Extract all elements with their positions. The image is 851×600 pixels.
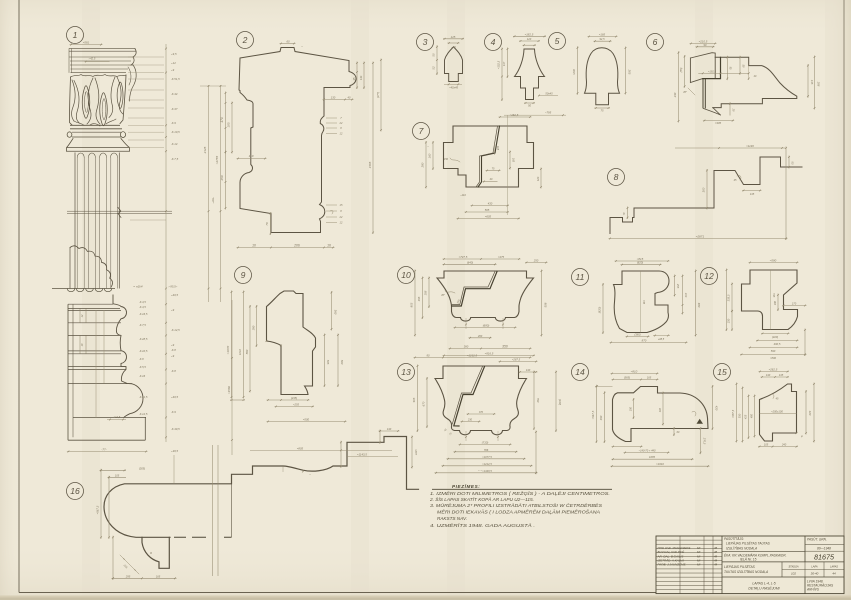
svg-text:LAPAS L-4, L-5: LAPAS L-4, L-5	[752, 582, 775, 586]
svg-text:358: 358	[424, 290, 428, 295]
svg-text:(320): (320)	[772, 335, 778, 339]
svg-text:≈200: ≈200	[572, 68, 576, 75]
svg-text:1010: 1010	[238, 348, 242, 355]
svg-text:280: 280	[421, 162, 425, 168]
svg-text:LAPAS: LAPAS	[830, 566, 838, 569]
svg-text:≈200x100: ≈200x100	[771, 410, 783, 414]
svg-text:⌐60⌐: ⌐60⌐	[211, 196, 215, 203]
svg-text:590: 590	[771, 349, 776, 353]
svg-text:16: 16	[327, 243, 331, 247]
svg-text:505: 505	[326, 360, 330, 365]
svg-text:180: 180	[774, 300, 777, 305]
svg-text:230: 230	[727, 318, 731, 324]
svg-text:≈1610: ≈1610	[656, 462, 664, 466]
svg-text:IZGLĪTĪBAS NODAĻA: IZGLĪTĪBAS NODAĻA	[726, 546, 757, 550]
svg-text:≈475: ≈475	[498, 255, 505, 259]
svg-text:≈2785: ≈2785	[215, 156, 219, 165]
svg-text:Mℓ: Mℓ	[697, 563, 700, 567]
svg-text:60: 60	[286, 40, 290, 44]
svg-text:255: 255	[676, 283, 680, 289]
svg-text:420: 420	[808, 411, 812, 416]
svg-text:≈810: ≈810	[631, 370, 638, 374]
svg-text:208: 208	[816, 81, 820, 87]
svg-text:2. ŠĪS LAPAS SKATĪT KOPĀ: 2. ŠĪS LAPAS SKATĪT KOPĀ AR LAPU U2—115.	[429, 497, 534, 502]
svg-text:4: 4	[491, 37, 496, 47]
svg-text:22: 22	[339, 121, 343, 125]
svg-text:≈152,5: ≈152,5	[497, 60, 501, 69]
svg-text:⌐40,5: ⌐40,5	[171, 293, 179, 297]
svg-text:410: 410	[684, 293, 688, 298]
svg-text:10: 10	[401, 270, 411, 280]
svg-text:3: 3	[423, 37, 428, 47]
svg-text:360: 360	[334, 310, 338, 315]
svg-text:≈737,5: ≈737,5	[459, 255, 468, 259]
svg-text:495: 495	[417, 296, 421, 301]
svg-text:505: 505	[485, 208, 490, 212]
svg-text:-77-: -77-	[101, 448, 106, 452]
svg-text:335,5: 335,5	[727, 294, 731, 301]
svg-text:≈192,5: ≈192,5	[708, 69, 716, 73]
svg-text:105: 105	[115, 473, 120, 477]
svg-text:870: 870	[642, 339, 647, 343]
svg-text:~795: ~795	[545, 111, 552, 115]
svg-text:4. UZMĒRĪTS 1948. GADA AUGU: 4. UZMĒRĪTS 1948. GADA AUGUSTĀ .	[430, 523, 535, 528]
svg-text:15: 15	[717, 367, 727, 377]
svg-text:φ: φ	[801, 435, 803, 438]
svg-text:230: 230	[673, 92, 677, 98]
svg-text:≈287,5: ≈287,5	[512, 358, 521, 362]
svg-text:206: 206	[293, 243, 300, 247]
svg-text:140: 140	[359, 75, 363, 80]
svg-text:≈800: ≈800	[770, 356, 776, 360]
svg-text:≈1130: ≈1130	[746, 144, 754, 148]
svg-text:~110: ~110	[460, 193, 466, 197]
svg-text:≈1212,5: ≈1212,5	[467, 354, 478, 358]
svg-text:1085: 1085	[649, 455, 655, 459]
svg-text:310: 310	[659, 407, 662, 412]
svg-text:11: 11	[576, 272, 585, 282]
svg-text:102: 102	[791, 572, 796, 576]
svg-text:PIEZĪMES:: PIEZĪMES:	[452, 483, 480, 489]
svg-text:~ ~: ~ ~	[478, 468, 483, 472]
svg-text:130: 130	[387, 427, 392, 431]
svg-text:50x45: 50x45	[545, 92, 553, 96]
svg-text:(377): (377)	[376, 92, 380, 98]
svg-text:LIEPĀJAS PILSĒTAS: LIEPĀJAS PILSĒTAS	[724, 565, 756, 569]
svg-text:~140-70 + 440: ~140-70 + 440	[639, 449, 656, 453]
svg-text:45°: 45°	[441, 294, 445, 297]
svg-text:790: 790	[536, 398, 540, 403]
svg-text:120: 120	[527, 37, 532, 41]
svg-text:IELĀ Nr. 15: IELĀ Nr. 15	[740, 558, 757, 562]
svg-text:(305): (305)	[139, 466, 145, 470]
svg-text:-6 4,5: -6 4,5	[139, 305, 146, 309]
svg-text:≈590: ≈590	[770, 259, 777, 263]
svg-text:30-40: 30-40	[811, 572, 819, 576]
svg-text:≈165: ≈165	[599, 33, 606, 37]
svg-text:PARB. J.JAUNZEMS: PARB. J.JAUNZEMS	[658, 563, 686, 567]
svg-text:-6 8: -6 8	[139, 357, 144, 361]
svg-text:-6 10,5: -6 10,5	[171, 130, 180, 134]
svg-text:670: 670	[422, 401, 426, 406]
svg-text:-6 12,5: -6 12,5	[171, 328, 180, 332]
svg-text:⌐30,5: ⌐30,5	[171, 449, 179, 453]
svg-text:-6 5,5: -6 5,5	[139, 365, 146, 369]
svg-text:1565: 1565	[368, 161, 372, 168]
svg-text:10: 10	[252, 243, 256, 247]
svg-text:TAUTAS IZGLĪTĪBAS NODAĻA: TAUTAS IZGLĪTĪBAS NODAĻA	[724, 570, 768, 574]
svg-text:130: 130	[526, 368, 531, 372]
svg-text:135: 135	[779, 373, 784, 377]
svg-text:LAPA: LAPA	[811, 566, 818, 569]
svg-text:135: 135	[750, 192, 755, 196]
svg-text:50: 50	[432, 53, 436, 57]
svg-text:≈1348,5: ≈1348,5	[482, 469, 492, 473]
svg-text:⌐9: ⌐9	[171, 354, 175, 358]
svg-text:137: 137	[502, 61, 506, 66]
svg-text:44: 44	[832, 572, 836, 576]
svg-text:390: 390	[251, 325, 255, 330]
svg-text:2125: 2125	[203, 146, 207, 154]
svg-text:≈567,5: ≈567,5	[591, 410, 595, 419]
svg-text:≈1070: ≈1070	[226, 346, 230, 355]
svg-text:28: 28	[731, 108, 734, 112]
svg-text:318: 318	[496, 146, 499, 151]
svg-text:≈255: ≈255	[293, 403, 299, 407]
svg-text:50: 50	[528, 104, 531, 108]
svg-text:130: 130	[331, 96, 336, 100]
svg-text:270,5: 270,5	[702, 437, 706, 445]
svg-text:490: 490	[599, 415, 603, 420]
svg-text:(710): (710)	[482, 441, 489, 445]
svg-text:165: 165	[512, 158, 515, 163]
svg-text:105: 105	[764, 443, 769, 447]
svg-text:≈2671: ≈2671	[696, 235, 705, 239]
svg-text:≈587,5: ≈587,5	[731, 409, 735, 418]
svg-text:160: 160	[428, 153, 432, 158]
svg-text:(85): (85)	[679, 68, 683, 73]
svg-text:~40x45: ~40x45	[449, 86, 459, 90]
svg-text:370: 370	[479, 411, 484, 414]
svg-text:905: 905	[412, 397, 416, 402]
svg-text:-6 51,5: -6 51,5	[171, 77, 180, 81]
svg-text:-6 41,5: -6 41,5	[139, 395, 148, 399]
svg-text:⌐9: ⌐9	[171, 68, 175, 72]
svg-text:-6 7,5: -6 7,5	[171, 157, 179, 161]
svg-text:(680): (680)	[483, 324, 490, 328]
svg-text:PASŪTĪTĀJS:: PASŪTĪTĀJS:	[724, 537, 744, 541]
svg-text:5: 5	[555, 36, 560, 46]
svg-text:≈12,5: ≈12,5	[114, 415, 121, 419]
svg-text:≈287: ≈287	[414, 449, 418, 455]
svg-text:3. MŪRĒJUMA 2ᵀ PROFILI IZST: 3. MŪRĒJUMA 2ᵀ PROFILI IZSTRĀDĀTI ATBILS…	[430, 503, 602, 508]
svg-text:~45: ~45	[451, 45, 456, 49]
svg-text:-6 16: -6 16	[139, 374, 146, 378]
svg-text:-6 8: -6 8	[171, 369, 176, 373]
svg-text:(565): (565)	[624, 376, 630, 380]
svg-text:-6 9: -6 9	[171, 410, 176, 414]
svg-text:150: 150	[444, 158, 449, 161]
svg-text:230: 230	[467, 419, 473, 422]
svg-text:295: 295	[125, 574, 131, 578]
svg-text:≈1560: ≈1560	[227, 386, 231, 394]
svg-text:≈262,5: ≈262,5	[769, 368, 778, 372]
svg-text:415: 415	[743, 414, 747, 419]
svg-text:≈605: ≈605	[485, 215, 492, 219]
svg-text:75: 75	[601, 109, 604, 113]
svg-text:⌐9: ⌐9	[171, 308, 175, 312]
svg-text:165: 165	[156, 574, 161, 578]
svg-text:(235): (235)	[291, 396, 297, 400]
svg-text:DETAĻU RASĒJUMI: DETAĻU RASĒJUMI	[748, 587, 779, 591]
svg-text:≈916,5: ≈916,5	[485, 352, 494, 356]
svg-text:-6 16,5: -6 16,5	[139, 312, 148, 316]
svg-text:-6 49,5: -6 49,5	[171, 427, 180, 431]
svg-text:92,5: 92,5	[599, 37, 605, 41]
svg-text:766: 766	[484, 448, 489, 452]
svg-text:745: 745	[772, 293, 776, 298]
svg-text:≈805: ≈805	[297, 446, 304, 450]
svg-text:⌐42,5: ⌐42,5	[89, 57, 96, 61]
svg-text:420: 420	[714, 406, 718, 411]
svg-text:170: 170	[792, 302, 797, 306]
svg-text:13: 13	[401, 367, 411, 377]
svg-text:490,5: 490,5	[774, 342, 781, 346]
svg-text:6: 6	[653, 37, 658, 47]
svg-text:-6 4,5: -6 4,5	[139, 300, 146, 304]
svg-text:135: 135	[810, 80, 814, 85]
svg-text:2: 2	[242, 35, 248, 45]
svg-text:240: 240	[781, 443, 787, 447]
svg-text:350: 350	[502, 345, 508, 349]
svg-text:380: 380	[464, 345, 469, 349]
svg-text:205: 205	[628, 69, 632, 75]
svg-text:280: 280	[477, 334, 483, 338]
svg-text:-6 12,5: -6 12,5	[139, 412, 148, 416]
svg-text:≈567,5: ≈567,5	[96, 505, 100, 514]
svg-text:-6 14: -6 14	[171, 142, 178, 146]
svg-text:745: 745	[642, 300, 645, 305]
svg-text:-6 28,5: -6 28,5	[139, 337, 148, 341]
svg-text:110: 110	[249, 154, 254, 158]
svg-text:R: R	[150, 551, 152, 555]
svg-text:8: 8	[614, 172, 619, 182]
svg-text:680: 680	[697, 303, 701, 308]
svg-text:805: 805	[543, 303, 547, 308]
svg-text:90: 90	[427, 354, 430, 358]
svg-text:430: 430	[488, 202, 493, 206]
svg-text:⌀45,5: ⌀45,5	[658, 338, 665, 341]
svg-text:16: 16	[70, 486, 80, 496]
svg-text:≈305: ≈305	[715, 121, 722, 125]
svg-text:-6 44: -6 44	[171, 92, 178, 96]
svg-text:⌐12: ⌐12	[171, 61, 176, 65]
svg-text:105: 105	[227, 122, 231, 127]
svg-text:≈1077,5: ≈1077,5	[482, 455, 492, 459]
svg-text:300: 300	[702, 187, 706, 192]
svg-text:-6 10,5: -6 10,5	[139, 349, 148, 353]
svg-text:-6 7,5: -6 7,5	[139, 323, 146, 327]
svg-text:400: 400	[750, 413, 753, 418]
svg-text:≈1212,5: ≈1212,5	[482, 462, 492, 466]
svg-text:MĒRI DOTI IEKAVĀS ( I LODZA: MĒRI DOTI IEKAVĀS ( I LODZA APMĒRĒM DAĻĀ…	[437, 510, 600, 515]
svg-text:250: 250	[533, 259, 539, 263]
svg-text:22: 22	[339, 215, 343, 219]
svg-text:(100): (100)	[558, 399, 562, 405]
svg-text:~: ~	[301, 44, 303, 48]
svg-text:⌐9: ⌐9	[171, 343, 175, 347]
svg-text:≈581: ≈581	[83, 41, 90, 45]
svg-text:≈815: ≈815	[637, 257, 644, 261]
svg-text:LIEPĀJAS PILSĒTAS TAUTAS: LIEPĀJAS PILSĒTAS TAUTAS	[726, 542, 771, 546]
svg-text:78: 78	[265, 222, 269, 226]
svg-text:PASŪT. GRN.: PASŪT. GRN.	[807, 538, 827, 542]
svg-text:52: 52	[432, 66, 436, 70]
svg-text:1. IZMĒRI DOTI MILIMETROS (: 1. IZMĒRI DOTI MILIMETROS ( REŽĢĪS ) - A…	[430, 491, 610, 496]
svg-text:125: 125	[451, 35, 456, 39]
svg-text:48: 48	[714, 563, 718, 567]
svg-text:14: 14	[575, 367, 585, 377]
svg-text:⌐9,5: ⌐9,5	[171, 52, 177, 56]
svg-text:ARHĪVS: ARHĪVS	[806, 588, 820, 592]
svg-text:12: 12	[704, 271, 714, 281]
svg-text:860: 860	[245, 349, 249, 354]
svg-text:45°: 45°	[683, 91, 687, 94]
svg-text:81675: 81675	[814, 553, 835, 562]
svg-text:130: 130	[766, 373, 771, 377]
svg-text:560: 560	[340, 360, 344, 365]
svg-text:9: 9	[241, 270, 246, 280]
svg-text:≈ πD/4: ≈ πD/4	[133, 285, 142, 289]
svg-text:(380): (380)	[634, 333, 640, 337]
svg-text:≈1143,5: ≈1143,5	[357, 453, 367, 457]
svg-text:(820): (820)	[598, 307, 602, 314]
svg-text:STADIJA: STADIJA	[788, 566, 798, 569]
svg-text:1: 1	[73, 30, 78, 40]
svg-text:≈500: ≈500	[303, 418, 310, 422]
svg-text:⌐40,5: ⌐40,5	[171, 395, 179, 399]
svg-text:530: 530	[737, 413, 741, 418]
svg-text:-6 37: -6 37	[171, 107, 178, 111]
svg-text:120: 120	[536, 176, 540, 181]
svg-text:805: 805	[410, 302, 414, 307]
svg-text:⌐95,5⌐: ⌐95,5⌐	[169, 285, 178, 289]
svg-text:150: 150	[629, 406, 632, 411]
svg-text:-6 8: -6 8	[171, 348, 176, 352]
svg-text:165: 165	[647, 376, 652, 380]
svg-text:-6 9: -6 9	[171, 121, 176, 125]
svg-text:(620): (620)	[637, 261, 643, 265]
svg-text:≈182,5: ≈182,5	[525, 32, 534, 36]
svg-text:RAKSTS NAV.: RAKSTS NAV.	[437, 516, 467, 521]
svg-text:(640): (640)	[467, 260, 473, 264]
svg-text:~: ~	[309, 473, 311, 477]
svg-text:80—1948: 80—1948	[817, 547, 831, 551]
